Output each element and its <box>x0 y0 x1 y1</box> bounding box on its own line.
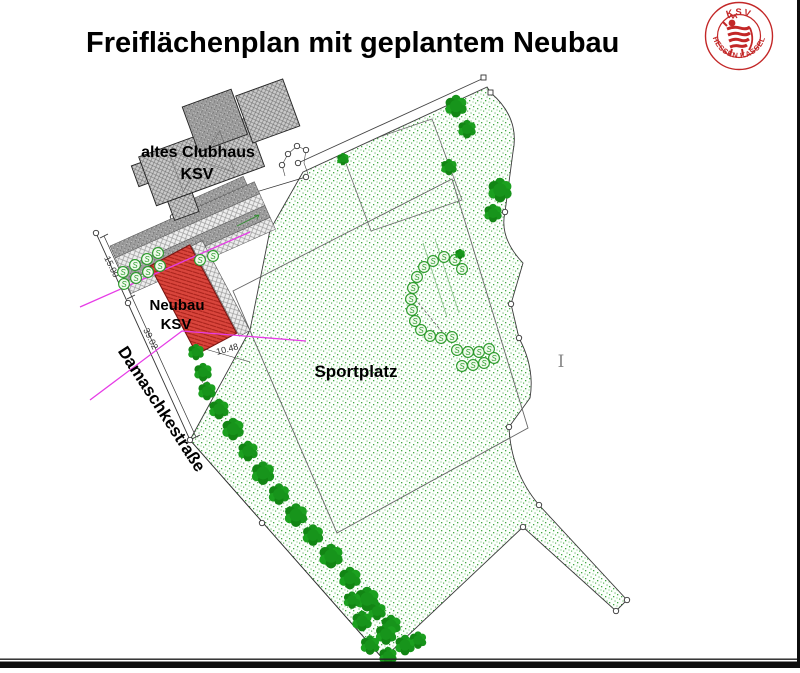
site-area-green <box>190 87 627 659</box>
site-plan: S Freiflächenplan mit geplantem Neubau K… <box>0 0 800 668</box>
bottom-border <box>0 662 800 669</box>
bottom-rule <box>0 659 800 660</box>
new-building-label: Neubau <box>149 297 204 314</box>
sports-field-label: Sportplatz <box>314 362 397 381</box>
dimension-10: 10.48 <box>215 341 239 356</box>
text-cursor: I <box>558 352 565 372</box>
club-logo: KSV HESSEN KASSEL <box>706 3 773 70</box>
new-building-sublabel: KSV <box>161 316 192 333</box>
old-clubhouse-sublabel: KSV <box>181 166 214 183</box>
old-clubhouse-label: altes Clubhaus <box>141 144 255 161</box>
page-title: Freiflächenplan mit geplantem Neubau <box>86 27 619 59</box>
